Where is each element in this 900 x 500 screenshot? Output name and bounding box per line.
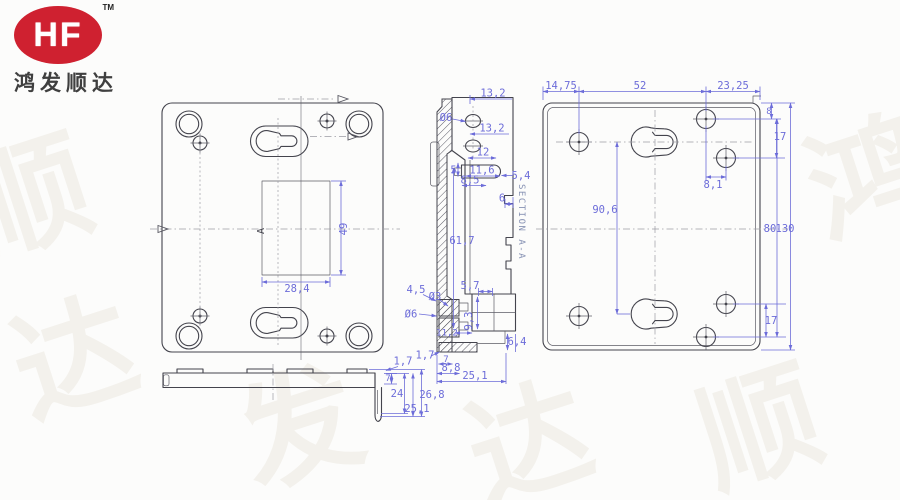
corner-hole <box>346 323 372 349</box>
dim: 26,8 <box>419 389 444 401</box>
section-title: SECTION A-A <box>516 184 526 260</box>
dim: 17 <box>765 315 778 327</box>
dim: 5,7 <box>461 280 480 292</box>
side-left-cap <box>164 375 170 386</box>
dim: 9,3 <box>463 312 475 331</box>
section-dimensions: 13,2 Ø6 13,2 12 5 11,6 5,4 8,5 6 <box>405 88 531 385</box>
dim: 52 <box>634 80 647 92</box>
dim: 8,8 <box>442 362 461 374</box>
side-tab <box>177 369 203 373</box>
side-view: 1,7 7 24 26,8 25,1 <box>163 356 445 422</box>
dim-rect-height: 49 <box>338 223 350 236</box>
dim: 25,1 <box>404 403 429 415</box>
center-cutout <box>262 181 330 275</box>
cad-drawing: 49 28,4 A 1,7 <box>0 0 900 500</box>
screw-hole <box>318 112 337 131</box>
section-foot <box>439 343 477 353</box>
section-arrow <box>338 96 348 103</box>
section-marker-label: A <box>256 228 267 234</box>
dim: 8,5 <box>461 175 480 187</box>
dim: 6 <box>499 193 505 205</box>
dim: 12 <box>477 147 490 159</box>
front-view: 49 28,4 A <box>150 96 400 361</box>
side-flange <box>375 373 382 422</box>
screw-hole <box>318 327 337 346</box>
corner-hole <box>176 111 202 137</box>
dim: 5,4 <box>512 170 531 182</box>
dim: 61,7 <box>449 235 474 247</box>
dim: 130 <box>776 223 795 235</box>
side-tab <box>287 369 313 373</box>
rear-dimensions: 14,75 52 23,25 8 17 8,1 90,6 <box>543 80 795 350</box>
dim: Ø3 <box>429 291 442 303</box>
side-plate-body <box>163 373 375 388</box>
keyhole-slot-bottom <box>631 299 677 329</box>
dim: Ø6 <box>405 309 418 321</box>
dim: 17 <box>774 131 787 143</box>
dim: 4,5 <box>407 284 426 296</box>
rear-view: 14,75 52 23,25 8 17 8,1 90,6 <box>536 80 795 350</box>
dim: 90,6 <box>592 204 617 216</box>
corner-hole <box>346 111 372 137</box>
front-centerlines <box>150 96 400 361</box>
side-dimensions: 1,7 7 24 26,8 25,1 <box>369 356 445 417</box>
dim: 13,2 <box>479 123 504 135</box>
dim: 1,7 <box>394 356 413 368</box>
dim: 25,1 <box>462 370 487 382</box>
dim: 6,4 <box>508 336 527 348</box>
drawing-canvas: 顺 达 发 达 顺 鸿 HF TM 鸿发顺达 <box>0 0 900 500</box>
dim: 11,2 <box>436 329 458 339</box>
dim: 80 <box>764 223 777 235</box>
dim: 23,25 <box>717 80 749 92</box>
dim: 8 <box>766 107 771 117</box>
dim: 8,1 <box>704 179 723 191</box>
corner-hole <box>176 323 202 349</box>
dim: 14,75 <box>545 80 577 92</box>
keyhole-slot-top <box>251 126 309 157</box>
side-tab <box>347 369 367 373</box>
dim: 7 <box>385 374 390 384</box>
dim: Ø6 <box>440 112 453 124</box>
side-tab <box>247 369 273 373</box>
target-hole <box>566 303 592 329</box>
front-dimensions: 49 28,4 A <box>256 181 350 295</box>
dim: 24 <box>391 388 404 400</box>
section-view: SECTION A-A 13,2 Ø6 13,2 12 5 11,6 5,4 8… <box>405 88 531 385</box>
keyhole-slot-bottom <box>251 308 309 339</box>
dim-rect-width: 28,4 <box>284 283 309 295</box>
dim: 1,7 <box>416 350 435 362</box>
dim: 13,2 <box>480 88 505 100</box>
